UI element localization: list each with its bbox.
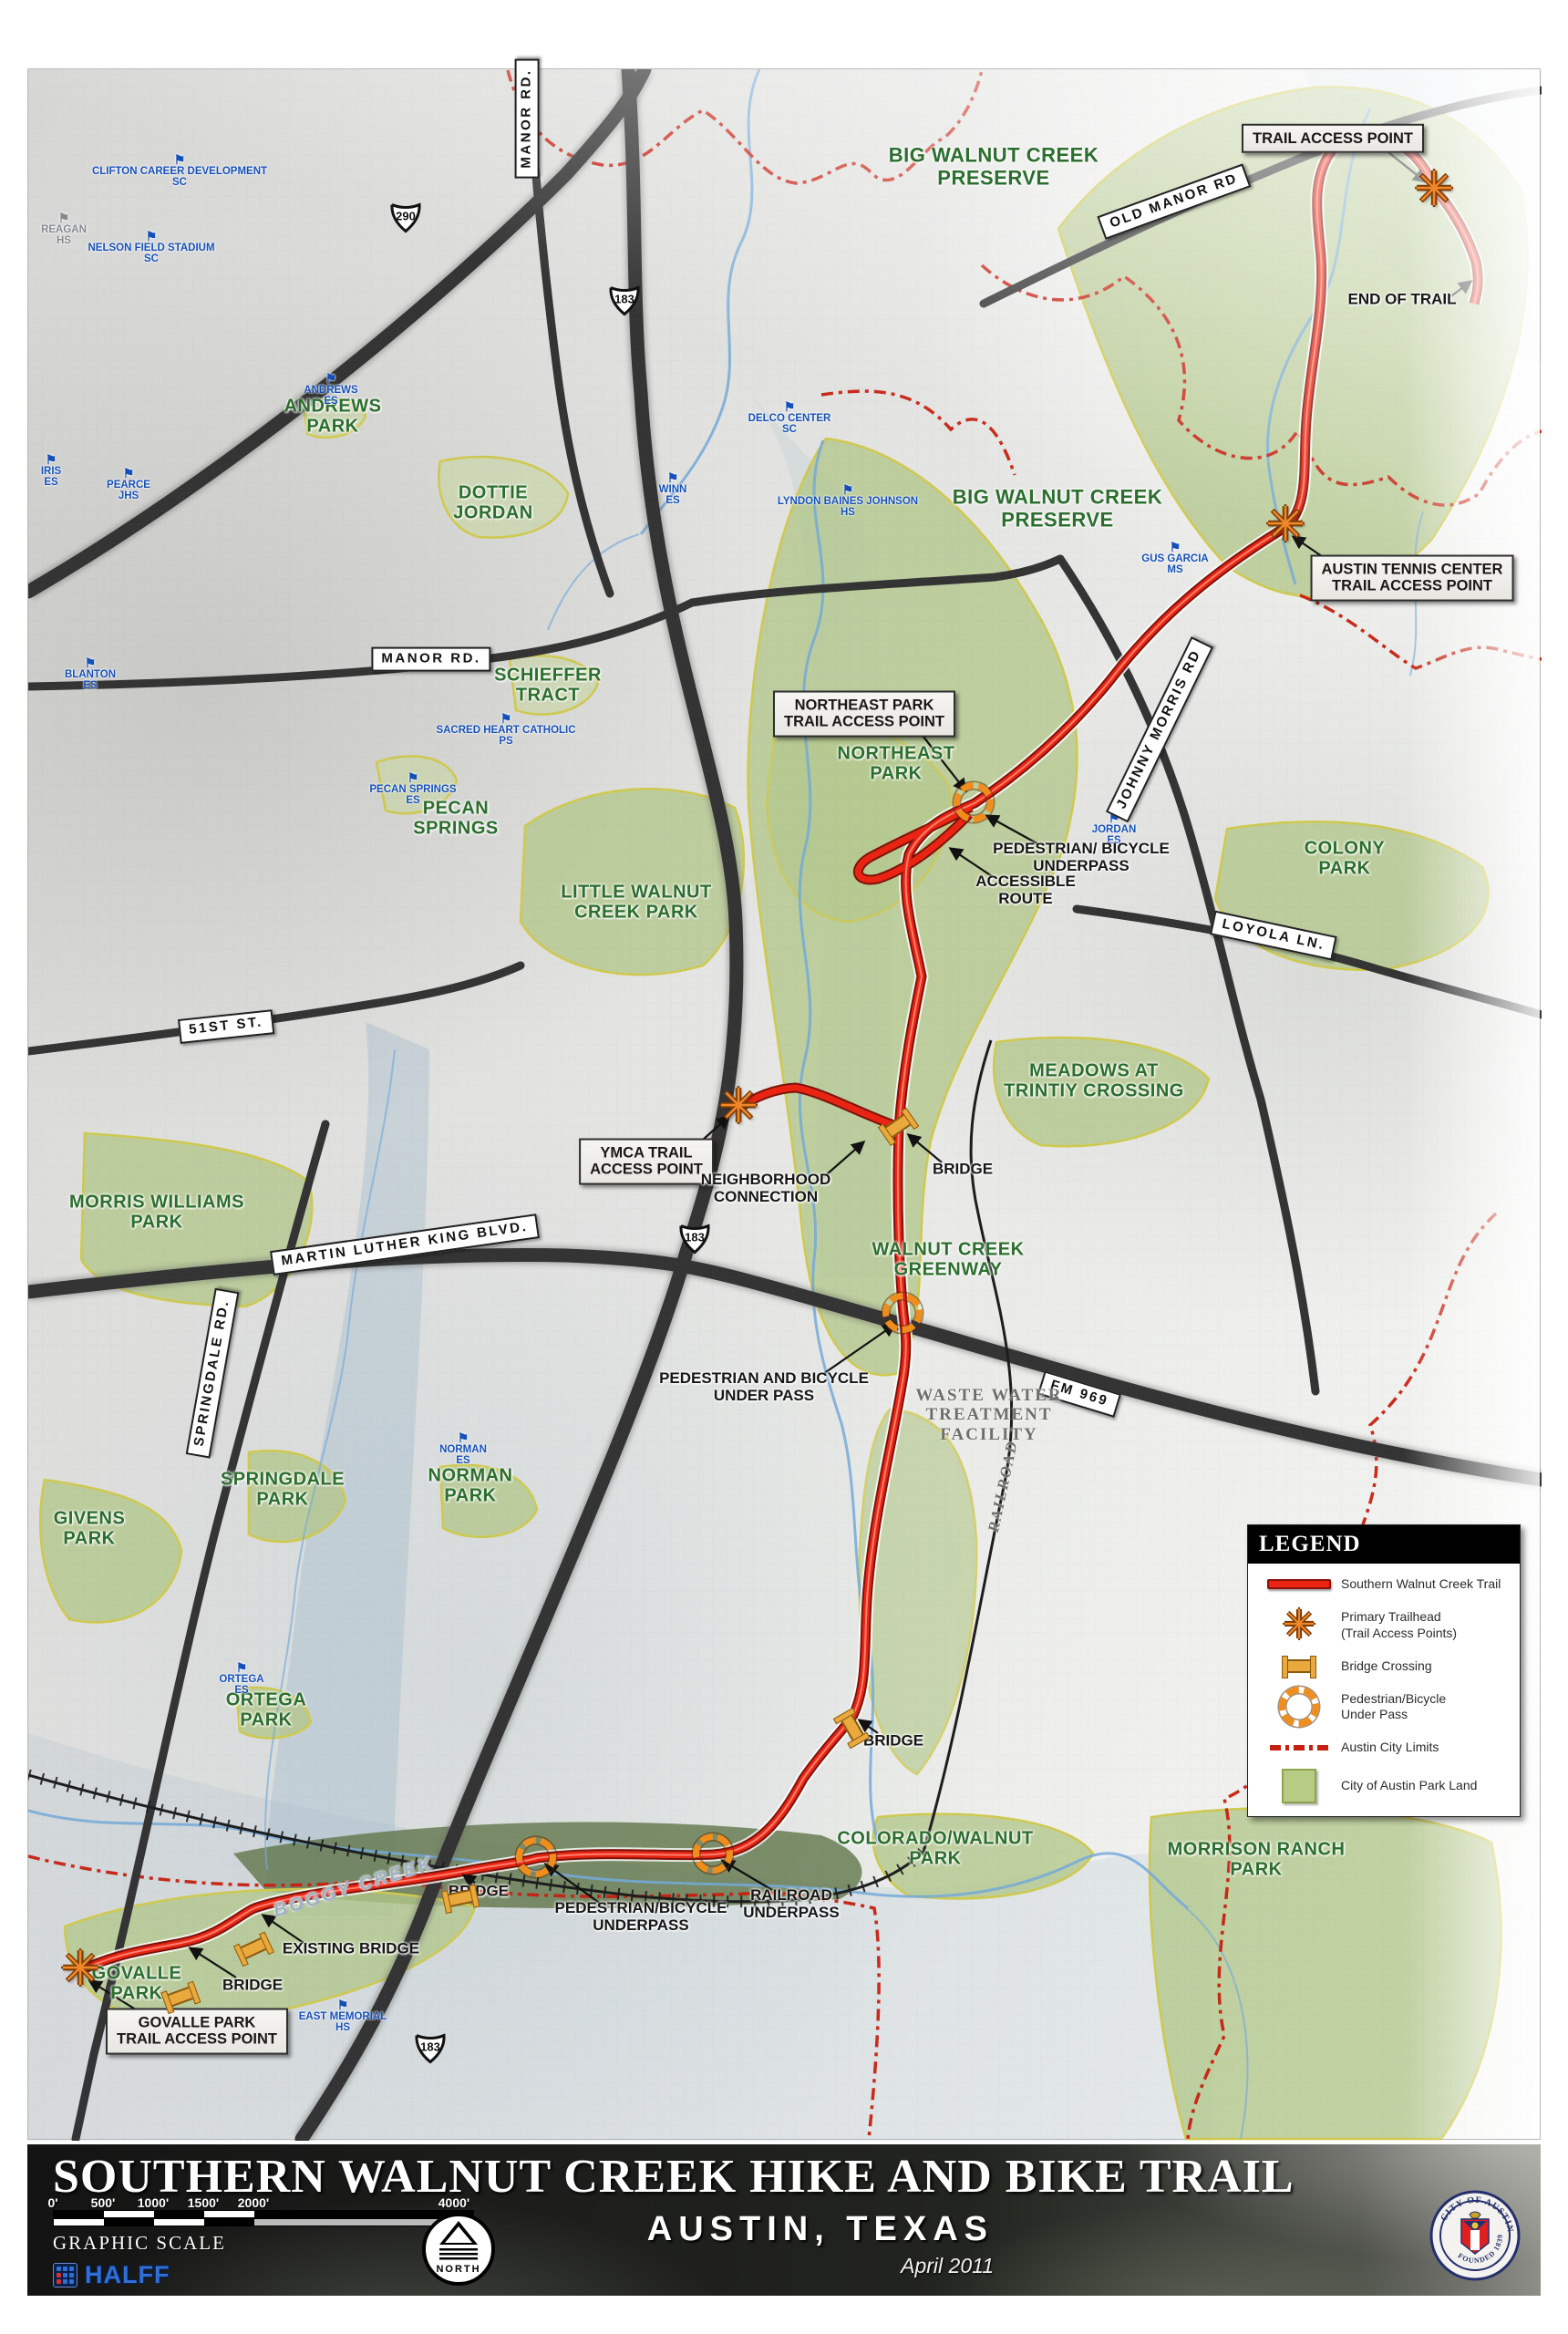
trail-annotation: END OF TRAIL xyxy=(1348,290,1457,307)
school-label: ⚑SACRED HEART CATHOLICPS xyxy=(436,713,575,748)
legend-item-label: City of Austin Park Land xyxy=(1341,1778,1477,1794)
trailhead-asterisk-icon: ✳ xyxy=(718,1083,758,1131)
halff-grid-icon xyxy=(53,2263,77,2288)
park-label: NORTHEASTPARK xyxy=(838,744,955,785)
north-label: NORTH xyxy=(436,2264,480,2275)
school-label: ⚑BLANTONES xyxy=(65,657,116,692)
trail-callout: GOVALLE PARKTRAIL ACCESS POINT xyxy=(106,2009,288,2055)
park-land-square-icon xyxy=(1257,1769,1341,1803)
legend-item: City of Austin Park Land xyxy=(1257,1769,1511,1803)
school-flag-icon: ⚑ xyxy=(299,1999,387,2011)
trail-annotation: PEDESTRIAN/BICYCLEUNDERPASS xyxy=(555,1899,727,1934)
road-label: 51ST ST. xyxy=(178,1009,274,1043)
legend-item-label: Primary Trailhead(Trail Access Points) xyxy=(1341,1609,1457,1641)
trail-annotation: RAILROADUNDERPASS xyxy=(743,1886,839,1921)
trail-callout: YMCA TRAILACCESS POINT xyxy=(579,1139,714,1185)
trail-callout: AUSTIN TENNIS CENTERTRAIL ACCESS POINT xyxy=(1311,555,1514,602)
legend-item: ✳Primary Trailhead(Trail Access Points) xyxy=(1257,1606,1511,1646)
highway-shield: 290 xyxy=(387,199,424,240)
us-route-shield-icon: 183 xyxy=(606,282,643,318)
school-flag-icon: ⚑ xyxy=(748,401,831,413)
school-flag-icon: ⚑ xyxy=(369,772,456,784)
highway-shield: 183 xyxy=(412,2029,449,2071)
school-flag-icon: ⚑ xyxy=(778,484,918,496)
trail-line-icon xyxy=(1257,1579,1341,1589)
school-label: ⚑DELCO CENTERSC xyxy=(748,401,831,436)
trail-annotation: NEIGHBORHOODCONNECTION xyxy=(701,1171,831,1205)
scale-bar-top xyxy=(53,2210,474,2218)
city-subtitle: AUSTIN, TEXAS xyxy=(647,2210,994,2249)
legend-item-label: Bridge Crossing xyxy=(1341,1658,1432,1675)
legend-item-label: Southern Walnut Creek Trail xyxy=(1341,1576,1501,1593)
school-flag-icon: ⚑ xyxy=(1141,542,1208,553)
school-label: ⚑IRISES xyxy=(41,454,61,489)
road-label: MANOR RD. xyxy=(515,58,540,178)
scale-tick: 4000' xyxy=(438,2195,469,2210)
underpass-icon xyxy=(877,1287,928,1338)
legend-title: LEGEND xyxy=(1248,1525,1520,1564)
park-label: MORRISON RANCHPARK xyxy=(1168,1840,1346,1881)
school-flag-icon: ⚑ xyxy=(92,154,267,166)
trail-annotation: PEDESTRIAN AND BICYCLEUNDER PASS xyxy=(659,1369,869,1404)
city-limits-dash-icon xyxy=(1257,1745,1341,1750)
scale-bar-bottom xyxy=(53,2218,474,2226)
park-label: COLORADO/WALNUTPARK xyxy=(837,1829,1033,1870)
park-label: COLONYPARK xyxy=(1305,839,1386,880)
legend-item: Pedestrian/BicycleUnder Pass xyxy=(1257,1687,1511,1727)
school-flag-icon: ⚑ xyxy=(219,1662,263,1674)
trailhead-asterisk-icon: ✳ xyxy=(1414,166,1454,213)
school-label: ⚑ANDREWSES xyxy=(304,373,357,408)
trail-annotation: BRIDGE xyxy=(863,1731,923,1749)
us-route-shield-icon: 290 xyxy=(387,199,424,235)
park-label: LITTLE WALNUTCREEK PARK xyxy=(561,883,711,924)
park-label: SPRINGDALEPARK xyxy=(221,1470,345,1511)
legend: LEGEND Southern Walnut Creek Trail✳Prima… xyxy=(1247,1524,1521,1817)
svg-text:183: 183 xyxy=(420,2040,440,2054)
highway-shield: 183 xyxy=(606,282,643,323)
school-flag-icon: ⚑ xyxy=(436,713,575,725)
scale-tick: 1000' xyxy=(138,2195,169,2210)
us-route-shield-icon: 183 xyxy=(412,2029,449,2066)
park-label: BIG WALNUT CREEKPRESERVE xyxy=(889,144,1099,189)
underpass-icon xyxy=(948,777,999,828)
school-label: ⚑LYNDON BAINES JOHNSONHS xyxy=(778,484,918,519)
facility-label: RAILROAD xyxy=(985,1439,1021,1534)
road-label: MARTIN LUTHER KING BLVD. xyxy=(270,1213,540,1275)
map-poster: ANDREWSPARKDOTTIEJORDANPECANSPRINGSSCHIE… xyxy=(0,0,1568,2334)
road-label: LOYOLA LN. xyxy=(1210,911,1337,961)
school-flag-icon: ⚑ xyxy=(439,1432,487,1444)
trail-annotation: ACCESSIBLEROUTE xyxy=(975,873,1076,907)
school-label: ⚑WINNES xyxy=(659,472,687,507)
trail-annotation: EXISTING BRIDGE xyxy=(283,1939,419,1957)
school-flag-icon: ⚑ xyxy=(304,373,357,385)
facility-label: WASTE WATERTREATMENTFACILITY xyxy=(915,1386,1062,1444)
highway-shield: 183 xyxy=(676,1220,713,1261)
city-of-austin-seal: CITY OF AUSTIN FOUNDED 1839 xyxy=(1429,2190,1521,2281)
legend-item-label: Austin City Limits xyxy=(1341,1740,1439,1756)
map-labels-layer: ANDREWSPARKDOTTIEJORDANPECANSPRINGSSCHIE… xyxy=(0,0,1568,2334)
park-label: MORRIS WILLIAMSPARK xyxy=(69,1193,244,1234)
park-label: SCHIEFFERTRACT xyxy=(494,666,602,707)
scale-tick-labels: 0'500'1000'1500'2000'4000' xyxy=(53,2195,509,2210)
title-bar: SOUTHERN WALNUT CREEK HIKE AND BIKE TRAI… xyxy=(27,2144,1541,2296)
underpass-icon xyxy=(511,1832,562,1883)
school-label: ⚑EAST MEMORIALHS xyxy=(299,1999,387,2034)
legend-item: Austin City Limits xyxy=(1257,1740,1511,1756)
bridge-crossing-icon xyxy=(840,1712,865,1742)
school-label: ⚑REAGANHS xyxy=(41,212,87,247)
school-flag-icon: ⚑ xyxy=(88,231,214,243)
school-flag-icon: ⚑ xyxy=(107,468,150,480)
trail-callout: NORTHEAST PARKTRAIL ACCESS POINT xyxy=(773,691,955,738)
trailhead-asterisk-icon: ✳ xyxy=(60,1946,100,1993)
school-label: ⚑GUS GARCIAMS xyxy=(1141,542,1208,576)
road-label: JOHNNY MORRIS RD xyxy=(1106,636,1213,822)
underpass-icon xyxy=(687,1828,738,1879)
road-label: OLD MANOR RD xyxy=(1097,163,1251,239)
trailhead-asterisk-icon: ✳ xyxy=(1257,1606,1341,1646)
legend-item: Southern Walnut Creek Trail xyxy=(1257,1576,1511,1593)
school-flag-icon: ⚑ xyxy=(41,212,87,224)
trailhead-asterisk-icon: ✳ xyxy=(1265,501,1305,549)
trail-callout: TRAIL ACCESS POINT xyxy=(1242,124,1424,153)
us-route-shield-icon: 183 xyxy=(676,1220,713,1256)
school-label: ⚑CLIFTON CAREER DEVELOPMENTSC xyxy=(92,154,267,189)
trail-annotation: BRIDGE xyxy=(933,1160,993,1177)
park-label: DOTTIEJORDAN xyxy=(453,483,532,524)
halff-wordmark: HALFF xyxy=(85,2261,170,2289)
school-label: ⚑PECAN SPRINGSES xyxy=(369,772,456,807)
park-label: GIVENSPARK xyxy=(54,1509,126,1550)
park-label: WALNUT CREEKGREENWAY xyxy=(872,1240,1024,1281)
road-label: MANOR RD. xyxy=(371,647,490,672)
halff-logo: HALFF xyxy=(53,2261,170,2289)
trail-annotation: BRIDGE xyxy=(222,1976,283,1993)
park-label: NORMANPARK xyxy=(428,1466,513,1507)
park-label: BIG WALNUT CREEKPRESERVE xyxy=(953,486,1162,531)
svg-text:290: 290 xyxy=(396,210,416,223)
legend-item-label: Pedestrian/BicycleUnder Pass xyxy=(1341,1691,1446,1723)
school-label: ⚑NELSON FIELD STADIUMSC xyxy=(88,231,214,265)
map-date: April 2011 xyxy=(901,2254,994,2278)
scale-tick: 0' xyxy=(47,2195,57,2210)
school-flag-icon: ⚑ xyxy=(41,454,61,466)
scale-tick: 1500' xyxy=(188,2195,219,2210)
legend-item: Bridge Crossing xyxy=(1257,1658,1511,1675)
bridge-crossing-icon xyxy=(238,1936,269,1960)
scale-tick: 2000' xyxy=(238,2195,269,2210)
scale-tick: 500' xyxy=(91,2195,116,2210)
park-label: MEADOWS ATTRINTIY CROSSING xyxy=(1004,1061,1184,1102)
school-label: ⚑NORMANES xyxy=(439,1432,487,1467)
bridge-crossing-icon xyxy=(1257,1659,1341,1673)
school-flag-icon: ⚑ xyxy=(65,657,116,669)
bridge-crossing-icon xyxy=(882,1112,913,1139)
north-arrow-icon: NORTH xyxy=(421,2212,496,2287)
school-flag-icon: ⚑ xyxy=(659,472,687,484)
svg-text:183: 183 xyxy=(614,293,634,306)
trail-annotation: PEDESTRIAN/ BICYCLEUNDERPASS xyxy=(993,840,1170,874)
underpass-circle-icon xyxy=(1257,1687,1341,1727)
school-label: ⚑ORTEGAES xyxy=(219,1662,263,1697)
road-label: SPRINGDALE RD. xyxy=(186,1287,240,1458)
svg-text:183: 183 xyxy=(685,1231,705,1244)
legend-items: Southern Walnut Creek Trail✳Primary Trai… xyxy=(1248,1576,1520,1803)
school-label: ⚑PEARCEJHS xyxy=(107,468,150,502)
creek-label: BOGGY CREEK xyxy=(271,1854,436,1922)
